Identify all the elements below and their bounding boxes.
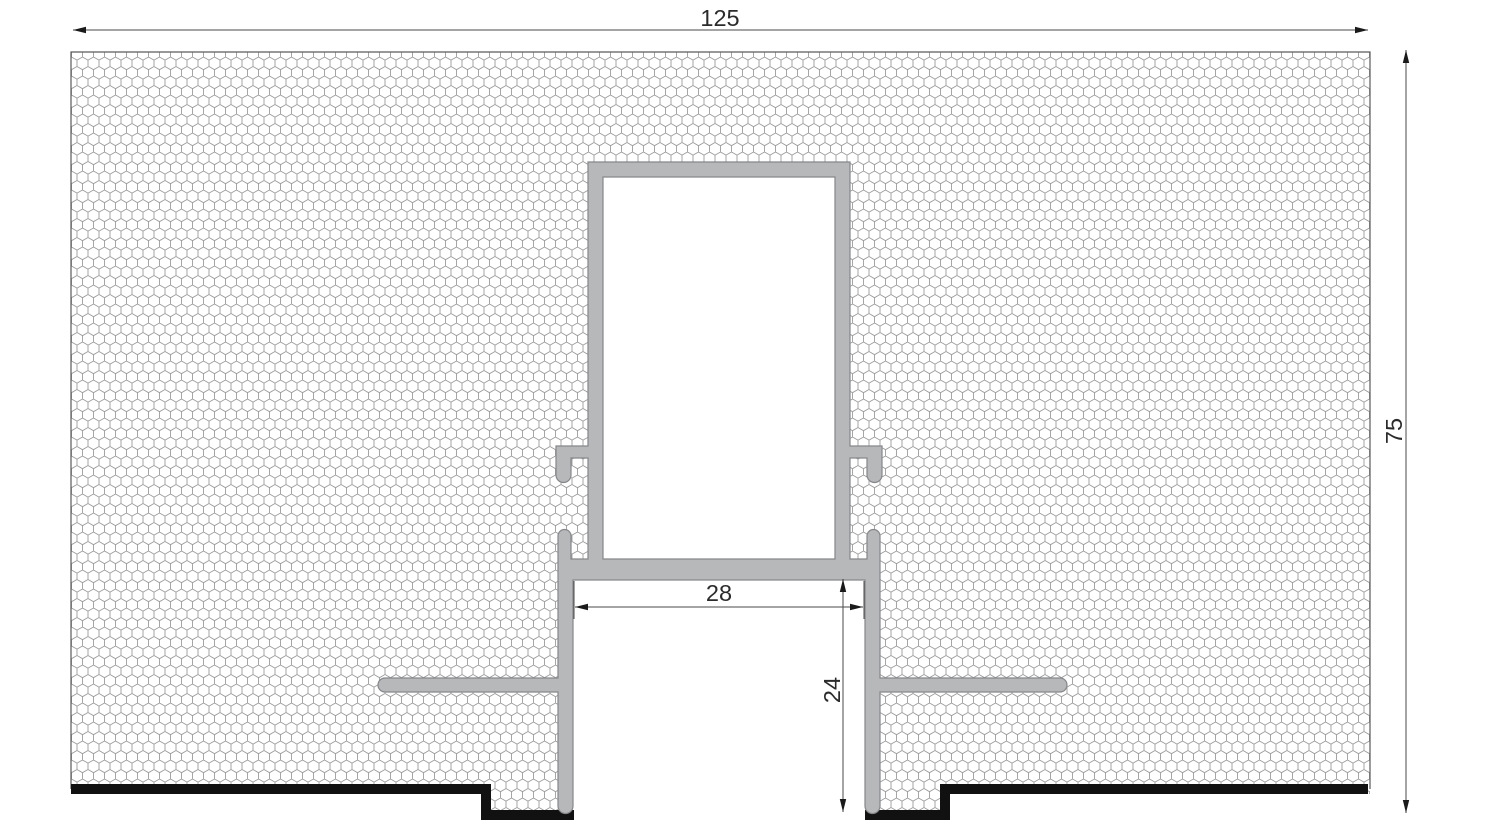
technical-drawing: 125 75 28 24	[0, 0, 1500, 840]
drawing-canvas: 125 75 28 24	[0, 0, 1500, 840]
arrow-left-icon	[73, 27, 86, 33]
board-edges	[71, 784, 1368, 820]
dim-label-recess-depth: 24	[819, 677, 845, 703]
hatch-right-strip	[850, 52, 880, 580]
dimension-recess-depth: 24	[819, 579, 846, 812]
hatch-top-block	[588, 52, 850, 162]
arrow-up-icon	[840, 579, 846, 592]
arrow-down-icon	[1403, 800, 1409, 813]
dimension-overall-width: 125	[73, 5, 1368, 33]
arrow-right-icon	[1355, 27, 1368, 33]
dimension-overall-height: 75	[1381, 50, 1409, 813]
hatch-left-step-pocket	[491, 794, 558, 812]
arrow-right-icon	[850, 604, 863, 610]
dim-label-opening-width: 28	[706, 580, 732, 606]
arrow-up-icon	[1403, 50, 1409, 63]
board-edge-left-bar	[71, 784, 491, 794]
board-edge-right-bar	[940, 784, 1368, 794]
arrow-left-icon	[575, 604, 588, 610]
arrow-down-icon	[840, 799, 846, 812]
dim-label-overall-height: 75	[1381, 418, 1407, 444]
dim-label-overall-width: 125	[700, 5, 739, 31]
hatch-right-step-pocket	[880, 794, 940, 812]
dimension-opening-width: 28	[574, 580, 864, 619]
hatch-left-strip	[558, 52, 588, 580]
